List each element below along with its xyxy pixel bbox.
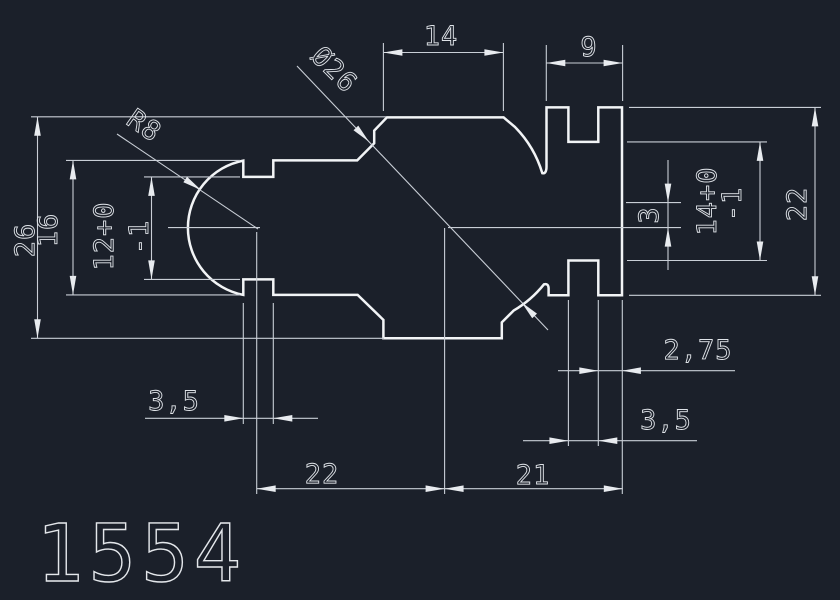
arrowhead bbox=[70, 276, 77, 295]
dim-top-width: 14 bbox=[424, 21, 459, 52]
arrowhead bbox=[148, 260, 155, 279]
dim-left-opening: 12+0 bbox=[89, 201, 120, 270]
arrowhead bbox=[579, 367, 598, 374]
dim-right-edge-offset: 2,75 bbox=[663, 335, 732, 366]
profile-path[interactable] bbox=[188, 107, 622, 338]
arrowhead bbox=[383, 49, 402, 56]
arrowhead bbox=[757, 242, 764, 261]
arrowhead bbox=[665, 228, 672, 247]
dim-shoulder-height: 16 bbox=[33, 213, 64, 248]
arrowhead bbox=[34, 117, 41, 136]
arrowhead bbox=[665, 184, 672, 203]
arrowhead bbox=[70, 160, 77, 179]
arrowhead bbox=[549, 437, 568, 444]
arrowhead bbox=[604, 60, 623, 67]
leader-diameter[interactable] bbox=[297, 66, 548, 330]
arrowhead bbox=[257, 485, 276, 492]
dimension-texts: 14 9 Ø26 R8 26 16 12+0 -1 3 14+0 -1 22 3… bbox=[10, 21, 813, 491]
profile-outline[interactable] bbox=[188, 107, 622, 338]
dim-right-notch-width: 3,5 bbox=[640, 405, 692, 436]
arrowhead bbox=[757, 142, 764, 161]
arrowhead bbox=[484, 49, 503, 56]
dim-left-notch-width: 3,5 bbox=[148, 386, 200, 417]
arrowhead bbox=[604, 485, 623, 492]
dim-top-right-tab: 9 bbox=[580, 32, 597, 63]
arrowhead bbox=[812, 276, 819, 295]
arrowhead bbox=[426, 485, 445, 492]
arrowhead bbox=[34, 319, 41, 338]
arrowhead bbox=[273, 415, 292, 422]
dim-bottom-left-span: 22 bbox=[305, 459, 340, 490]
drawing-canvas[interactable]: 14 9 Ø26 R8 26 16 12+0 -1 3 14+0 -1 22 3… bbox=[0, 0, 840, 600]
arrowhead bbox=[445, 485, 464, 492]
dim-right-height: 22 bbox=[782, 187, 813, 222]
dim-bottom-right-span: 21 bbox=[516, 460, 551, 491]
dim-diameter: Ø26 bbox=[305, 41, 364, 100]
arrowhead bbox=[812, 107, 819, 126]
part-number: 1554 bbox=[36, 508, 246, 600]
arrowhead bbox=[598, 437, 617, 444]
dim-right-slot-tol: -1 bbox=[717, 187, 748, 222]
arrowhead bbox=[622, 367, 641, 374]
arrowhead bbox=[148, 177, 155, 196]
dim-left-opening-tol: -1 bbox=[124, 220, 155, 255]
dim-center-offset: 3 bbox=[634, 206, 665, 223]
arrowhead bbox=[224, 415, 243, 422]
arrowhead bbox=[546, 60, 565, 67]
